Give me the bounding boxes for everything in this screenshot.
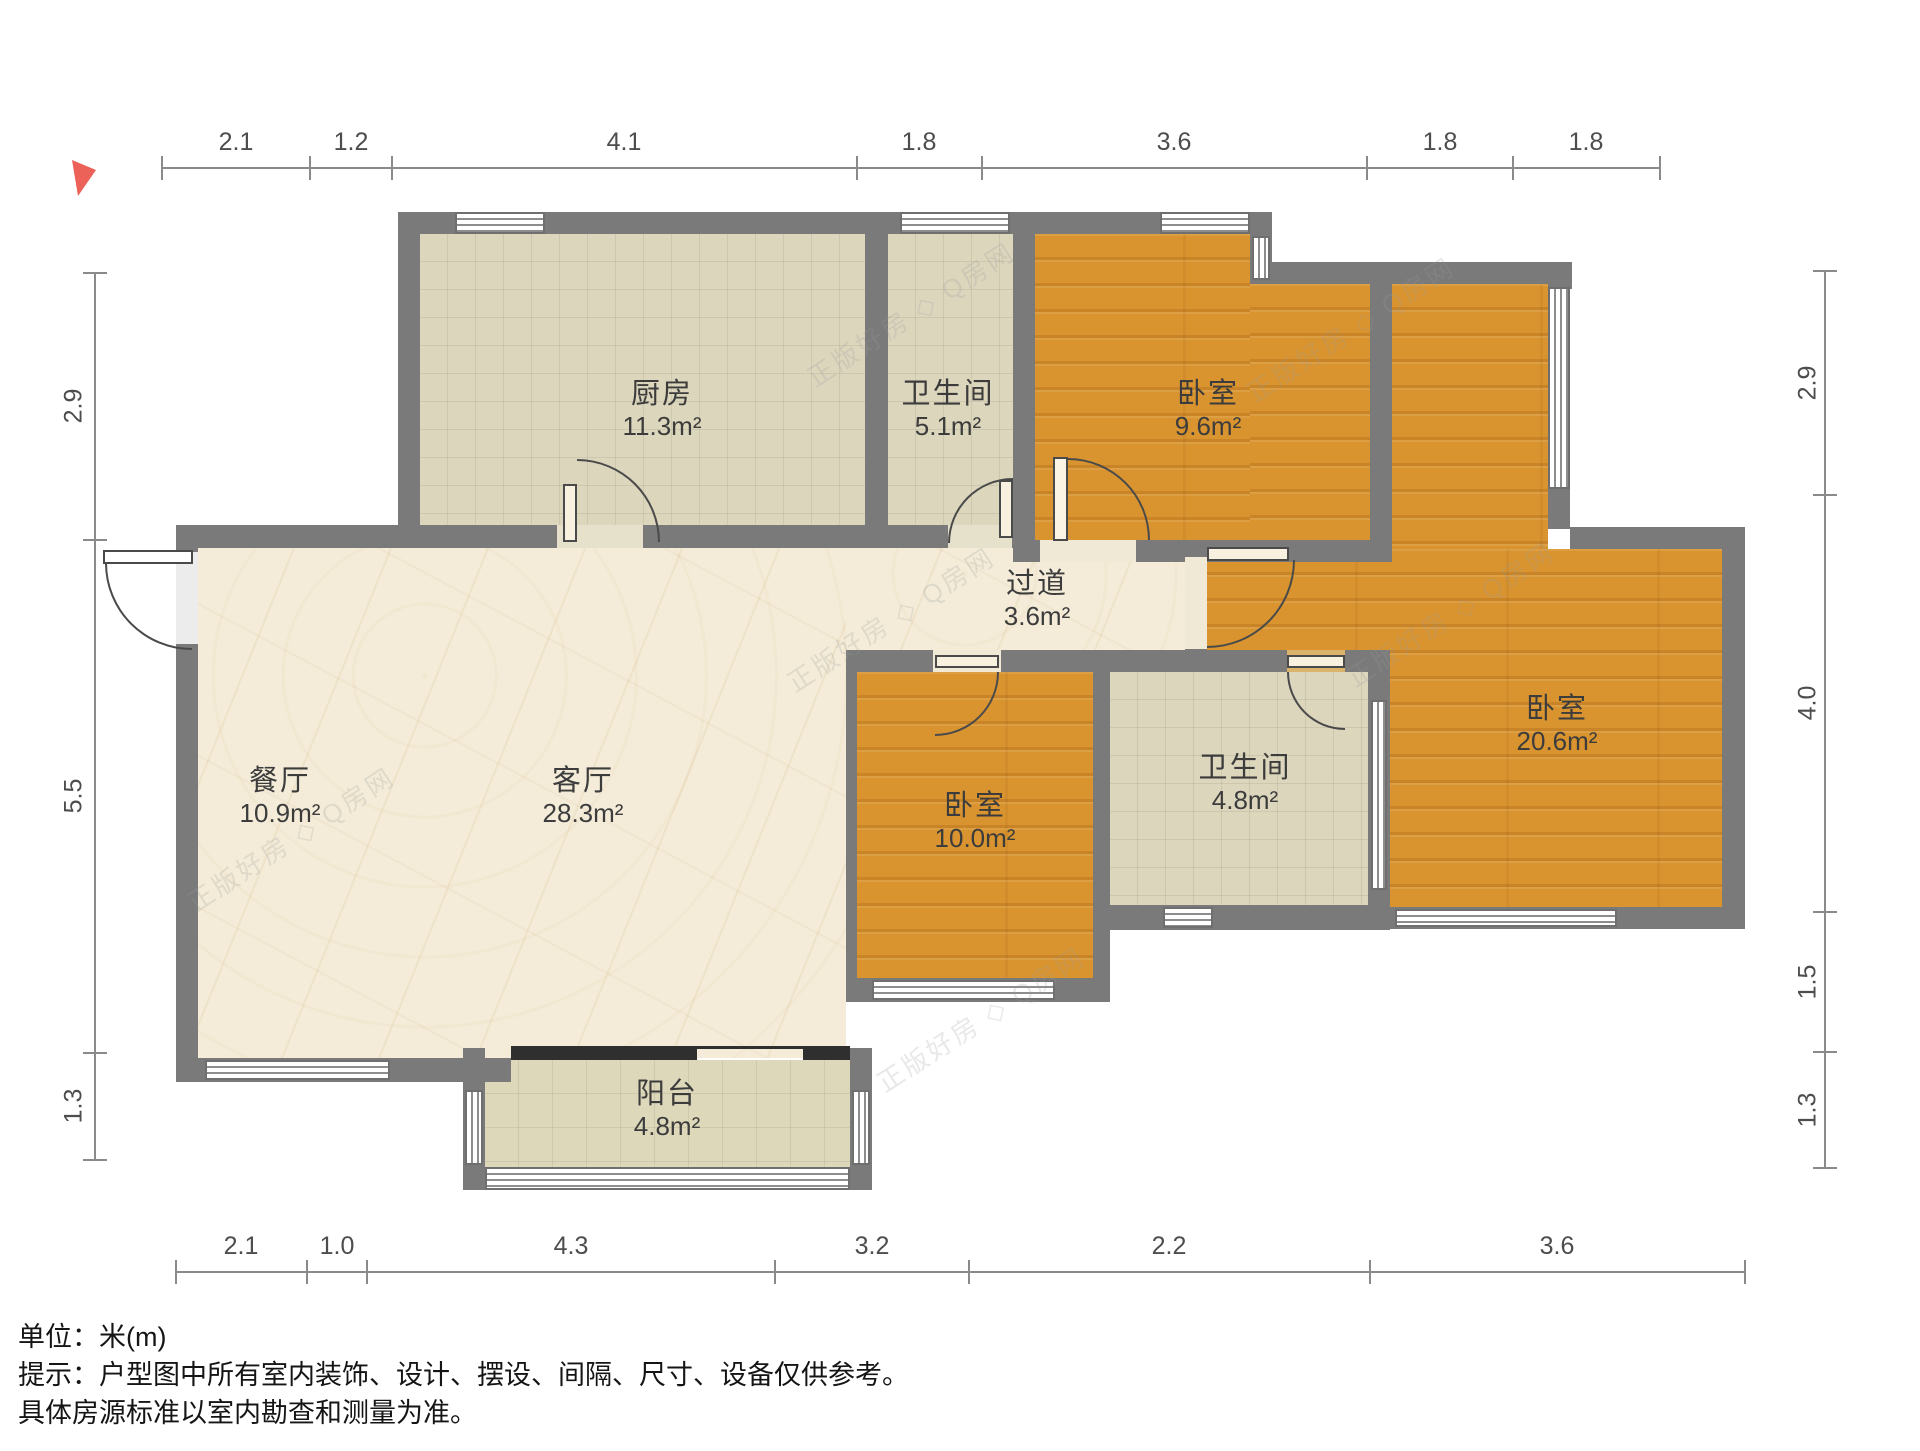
footnotes: 单位：米(m) 提示：户型图中所有室内装饰、设计、摆设、间隔、尺寸、设备仅供参考… bbox=[18, 1318, 909, 1432]
wall-right bbox=[1722, 549, 1745, 929]
bedroom-right-door-leaf bbox=[1207, 547, 1289, 561]
dim-value: 1.8 bbox=[1569, 128, 1604, 157]
window-balcony-right bbox=[852, 1090, 870, 1165]
watermark-brand: 正版好房 bbox=[872, 1010, 986, 1098]
room-label-bath-top: 卫生间 5.1m² bbox=[901, 378, 994, 442]
room-label-hallway: 过道 3.6m² bbox=[1004, 568, 1070, 632]
dim-tick bbox=[1512, 156, 1514, 180]
dim-tick bbox=[1369, 1260, 1371, 1284]
wall-kitchen-bath bbox=[865, 234, 888, 525]
room-label-bedroom-top: 卧室 9.6m² bbox=[1175, 378, 1241, 442]
wall-bath-mid-bottom bbox=[1110, 905, 1368, 930]
room-name: 卫生间 bbox=[901, 378, 994, 411]
dim-tick bbox=[1813, 1167, 1837, 1169]
wall-top-right-corner bbox=[1548, 262, 1572, 289]
room-label-bath-mid: 卫生间 4.8m² bbox=[1198, 752, 1291, 816]
kitchen-door-leaf bbox=[563, 484, 577, 542]
dim-tick bbox=[83, 539, 107, 541]
dim-tick bbox=[774, 1260, 776, 1284]
floorplan-page: { "meta": { "unit_label": "单位：米(m)", "no… bbox=[0, 0, 1920, 1451]
room-name: 餐厅 bbox=[240, 765, 321, 798]
dim-line bbox=[176, 1271, 1745, 1273]
dim-value: 4.3 bbox=[554, 1232, 589, 1261]
dim-value: 5.5 bbox=[60, 779, 89, 814]
dim-tick bbox=[1813, 270, 1837, 272]
dim-line bbox=[94, 273, 96, 1160]
room-area: 5.1m² bbox=[901, 411, 994, 442]
dim-value: 3.2 bbox=[855, 1232, 890, 1261]
room-label-bedroom-mid: 卧室 10.0m² bbox=[935, 790, 1016, 854]
bedroom-top-door-opening bbox=[1040, 540, 1136, 562]
bedroom-right-upper-floor bbox=[1392, 284, 1548, 549]
window-dining-bottom bbox=[205, 1060, 390, 1080]
dim-tick bbox=[968, 1260, 970, 1284]
dim-tick bbox=[1659, 156, 1661, 180]
window-bedroom-right-bottom bbox=[1395, 909, 1617, 927]
north-arrow-icon bbox=[66, 154, 102, 200]
entrance-door-leaf bbox=[103, 550, 193, 564]
room-label-balcony: 阳台 4.8m² bbox=[634, 1078, 700, 1142]
window-bath-mid-side bbox=[1371, 700, 1387, 890]
room-area: 3.6m² bbox=[1004, 601, 1070, 632]
dim-value: 2.9 bbox=[1794, 366, 1823, 401]
wall-notch-horizontal bbox=[1570, 527, 1745, 549]
room-area: 20.6m² bbox=[1517, 726, 1598, 757]
room-name: 卫生间 bbox=[1198, 752, 1291, 785]
dim-tick bbox=[1744, 1260, 1746, 1284]
disclaimer-line2: 具体房源标准以室内勘查和测量为准。 bbox=[18, 1394, 909, 1432]
balcony-sliding-door-frame-right bbox=[803, 1046, 850, 1060]
dim-value: 1.2 bbox=[334, 128, 369, 157]
dim-tick bbox=[161, 156, 163, 180]
room-name: 厨房 bbox=[623, 378, 702, 411]
dim-value: 2.1 bbox=[219, 128, 254, 157]
dim-tick bbox=[83, 272, 107, 274]
room-area: 4.8m² bbox=[634, 1111, 700, 1142]
dim-value: 2.9 bbox=[60, 389, 89, 424]
dim-value: 1.0 bbox=[320, 1232, 355, 1261]
dim-tick bbox=[1813, 494, 1837, 496]
room-label-living: 客厅 28.3m² bbox=[543, 765, 624, 829]
room-area: 4.8m² bbox=[1198, 785, 1291, 816]
window-bedroom-top bbox=[1160, 212, 1250, 234]
room-name: 卧室 bbox=[1517, 693, 1598, 726]
dim-tick bbox=[309, 156, 311, 180]
dim-value: 1.3 bbox=[60, 1089, 89, 1124]
dim-value: 4.0 bbox=[1794, 686, 1823, 721]
wall-bath-bedroom-top bbox=[1013, 234, 1035, 540]
dim-tick bbox=[856, 156, 858, 180]
dim-tick bbox=[366, 1260, 368, 1284]
balcony-sliding-door-frame-left bbox=[511, 1046, 697, 1060]
window-balcony-left bbox=[465, 1090, 483, 1165]
dim-value: 3.6 bbox=[1540, 1232, 1575, 1261]
room-label-bedroom-right: 卧室 20.6m² bbox=[1517, 693, 1598, 757]
wall-bedroom-mid-right bbox=[1093, 672, 1110, 978]
dim-tick bbox=[981, 156, 983, 180]
bath-mid-door-leaf bbox=[1287, 655, 1345, 668]
room-name: 过道 bbox=[1004, 568, 1070, 601]
room-name: 客厅 bbox=[543, 765, 624, 798]
dim-tick bbox=[1813, 1051, 1837, 1053]
room-area: 28.3m² bbox=[543, 798, 624, 829]
room-area: 9.6m² bbox=[1175, 411, 1241, 442]
wall-hallway-top bbox=[420, 525, 1013, 548]
dim-line bbox=[1824, 271, 1826, 1168]
wall-living-bedroom-mid bbox=[846, 672, 857, 978]
room-area: 11.3m² bbox=[623, 411, 702, 442]
dim-tick bbox=[391, 156, 393, 180]
dim-line bbox=[162, 167, 1660, 169]
dim-tick bbox=[306, 1260, 308, 1284]
dim-tick bbox=[175, 1260, 177, 1284]
bedroom-right-door-opening bbox=[1185, 557, 1207, 649]
dim-value: 2.1 bbox=[224, 1232, 259, 1261]
window-bath-mid-bottom bbox=[1163, 907, 1213, 928]
dim-tick bbox=[1813, 911, 1837, 913]
disclaimer-line1: 提示：户型图中所有室内装饰、设计、摆设、间隔、尺寸、设备仅供参考。 bbox=[18, 1356, 909, 1394]
dim-value: 3.6 bbox=[1157, 128, 1192, 157]
dim-value: 1.8 bbox=[1423, 128, 1458, 157]
floor-plan: 厨房 11.3m² 卫生间 5.1m² 卧室 9.6m² 过道 3.6m² 餐厅… bbox=[0, 0, 1920, 1451]
bedroom-mid-door-leaf bbox=[935, 655, 999, 668]
dim-tick bbox=[1366, 156, 1368, 180]
room-name: 卧室 bbox=[1175, 378, 1241, 411]
dim-tick bbox=[83, 1052, 107, 1054]
dim-value: 1.8 bbox=[902, 128, 937, 157]
dim-value: 4.1 bbox=[607, 128, 642, 157]
window-kitchen-top bbox=[455, 212, 545, 234]
entrance-door-swing bbox=[105, 563, 192, 650]
room-name: 阳台 bbox=[634, 1078, 700, 1111]
dim-value: 2.2 bbox=[1152, 1232, 1187, 1261]
dim-value: 1.3 bbox=[1794, 1093, 1823, 1128]
room-label-kitchen: 厨房 11.3m² bbox=[623, 378, 702, 442]
window-bath-top bbox=[900, 212, 1010, 234]
window-bedroom-right-upper bbox=[1548, 287, 1570, 489]
dim-tick bbox=[83, 1159, 107, 1161]
window-top-step bbox=[1252, 236, 1270, 280]
window-balcony-bottom bbox=[485, 1167, 850, 1190]
watermark-diamond-icon: ◇ bbox=[978, 991, 1014, 1029]
wall-dining-top bbox=[176, 525, 420, 548]
wall-kitchen-left bbox=[398, 234, 420, 525]
dim-value: 1.5 bbox=[1794, 965, 1823, 1000]
room-name: 卧室 bbox=[935, 790, 1016, 823]
bedroom-top-door-leaf bbox=[1053, 457, 1068, 541]
unit-note: 单位：米(m) bbox=[18, 1318, 909, 1356]
balcony-sliding-door-track bbox=[697, 1046, 803, 1049]
wall-notch-under-window bbox=[1548, 489, 1570, 529]
room-area: 10.0m² bbox=[935, 823, 1016, 854]
